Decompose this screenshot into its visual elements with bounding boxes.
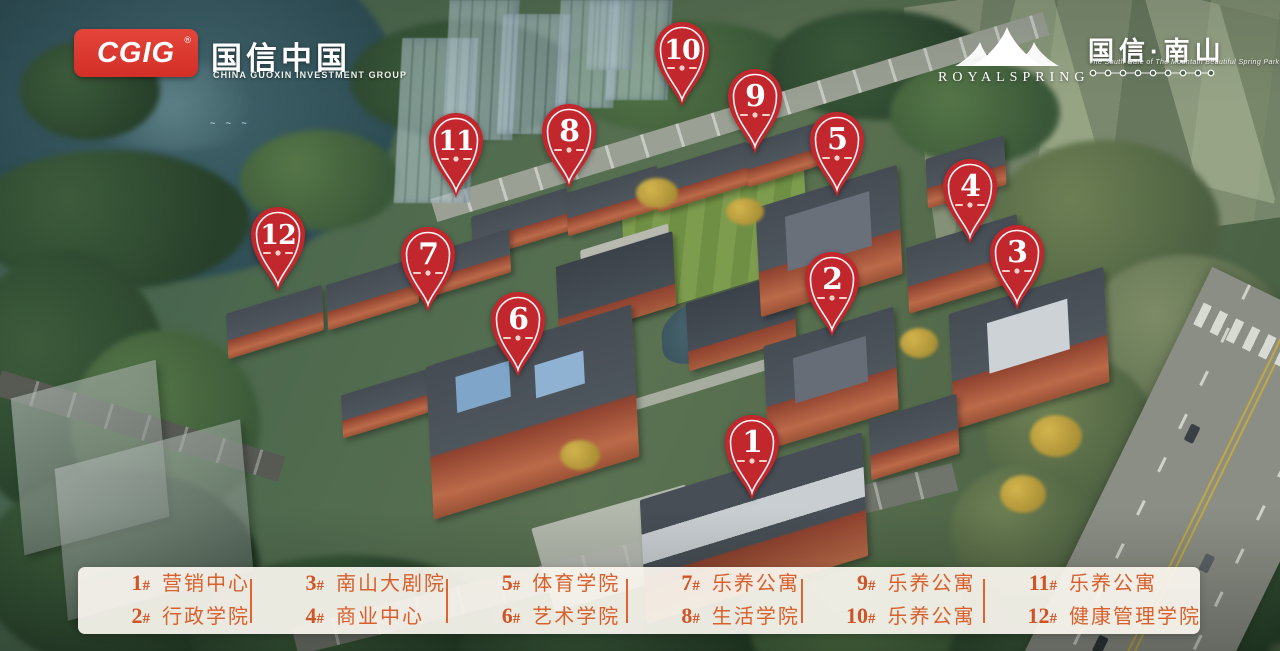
map-pin-11[interactable]: 11 (424, 109, 488, 201)
pin-number: 7 (418, 237, 438, 272)
pin-number: 11 (438, 126, 474, 157)
legend-item-5: 5#体育学院 (478, 568, 626, 601)
legend-column: 1#营销中心2#行政学院 (78, 567, 250, 634)
legend-item-1: 1#营销中心 (108, 568, 250, 601)
pin-number: 2 (822, 262, 842, 297)
legend-number: 2# (108, 601, 150, 634)
legend-number: 6# (478, 601, 520, 634)
map-pin-6[interactable]: 6 (486, 288, 550, 380)
legend-number: 10# (833, 601, 875, 634)
pin-number: 10 (664, 35, 700, 66)
legend-name: 生活学院 (712, 603, 800, 632)
legend-item-9: 9#乐养公寓 (833, 568, 983, 601)
map-pin-10[interactable]: 10 (650, 18, 714, 110)
legend-name: 乐养公寓 (887, 570, 975, 599)
pin-number: 4 (960, 169, 980, 204)
map-pin-7[interactable]: 7 (396, 223, 460, 315)
pin-number: 12 (260, 220, 296, 251)
map-pin-8[interactable]: 8 (537, 100, 601, 192)
legend-item-6: 6#艺术学院 (478, 601, 626, 634)
legend-name: 行政学院 (162, 603, 250, 632)
legend-number: 8# (658, 601, 700, 634)
legend-item-2: 2#行政学院 (108, 601, 250, 634)
legend-name: 南山大剧院 (336, 570, 446, 599)
map-pin-9[interactable]: 9 (723, 65, 787, 157)
legend-column: 11#乐养公寓12#健康管理学院 (985, 567, 1200, 634)
pin-number: 1 (742, 425, 762, 460)
legend-item-4: 4#商业中心 (282, 601, 446, 634)
legend-number: 5# (478, 568, 520, 601)
legend-number: 11# (1015, 568, 1057, 601)
pin-layer: 123456789101112 (0, 0, 1280, 651)
legend-name: 艺术学院 (532, 603, 620, 632)
legend-name: 营销中心 (162, 570, 250, 599)
pin-number: 8 (559, 114, 579, 149)
legend-column: 7#乐养公寓8#生活学院 (628, 567, 802, 634)
map-pin-12[interactable]: 12 (246, 203, 310, 295)
legend-bar: 1#营销中心2#行政学院3#南山大剧院4#商业中心5#体育学院6#艺术学院7#乐… (78, 567, 1200, 634)
legend-column: 3#南山大剧院4#商业中心 (252, 567, 446, 634)
legend-number: 9# (833, 568, 875, 601)
legend-item-8: 8#生活学院 (658, 601, 802, 634)
legend-number: 3# (282, 568, 324, 601)
legend-number: 7# (658, 568, 700, 601)
map-pin-2[interactable]: 2 (800, 248, 864, 340)
pin-number: 5 (827, 122, 847, 157)
legend-columns: 1#营销中心2#行政学院3#南山大剧院4#商业中心5#体育学院6#艺术学院7#乐… (78, 567, 1200, 634)
legend-number: 1# (108, 568, 150, 601)
legend-item-12: 12#健康管理学院 (1015, 601, 1200, 634)
pin-number: 6 (508, 302, 528, 337)
legend-item-3: 3#南山大剧院 (282, 568, 446, 601)
map-pin-5[interactable]: 5 (805, 108, 869, 200)
legend-name: 乐养公寓 (1069, 570, 1157, 599)
legend-item-11: 11#乐养公寓 (1015, 568, 1200, 601)
legend-name: 商业中心 (336, 603, 424, 632)
legend-name: 健康管理学院 (1069, 603, 1201, 632)
masterplan-image: ~ ~ ~ (0, 0, 1280, 651)
pin-number: 3 (1007, 235, 1027, 270)
legend-number: 12# (1015, 601, 1057, 634)
map-pin-4[interactable]: 4 (938, 155, 1002, 247)
legend-item-7: 7#乐养公寓 (658, 568, 802, 601)
legend-column: 5#体育学院6#艺术学院 (448, 567, 626, 634)
map-pin-1[interactable]: 1 (720, 411, 784, 503)
legend-column: 9#乐养公寓10#乐养公寓 (803, 567, 983, 634)
legend-item-10: 10#乐养公寓 (833, 601, 983, 634)
legend-name: 乐养公寓 (887, 603, 975, 632)
pin-number: 9 (745, 79, 765, 114)
legend-name: 乐养公寓 (712, 570, 800, 599)
legend-name: 体育学院 (532, 570, 620, 599)
legend-number: 4# (282, 601, 324, 634)
